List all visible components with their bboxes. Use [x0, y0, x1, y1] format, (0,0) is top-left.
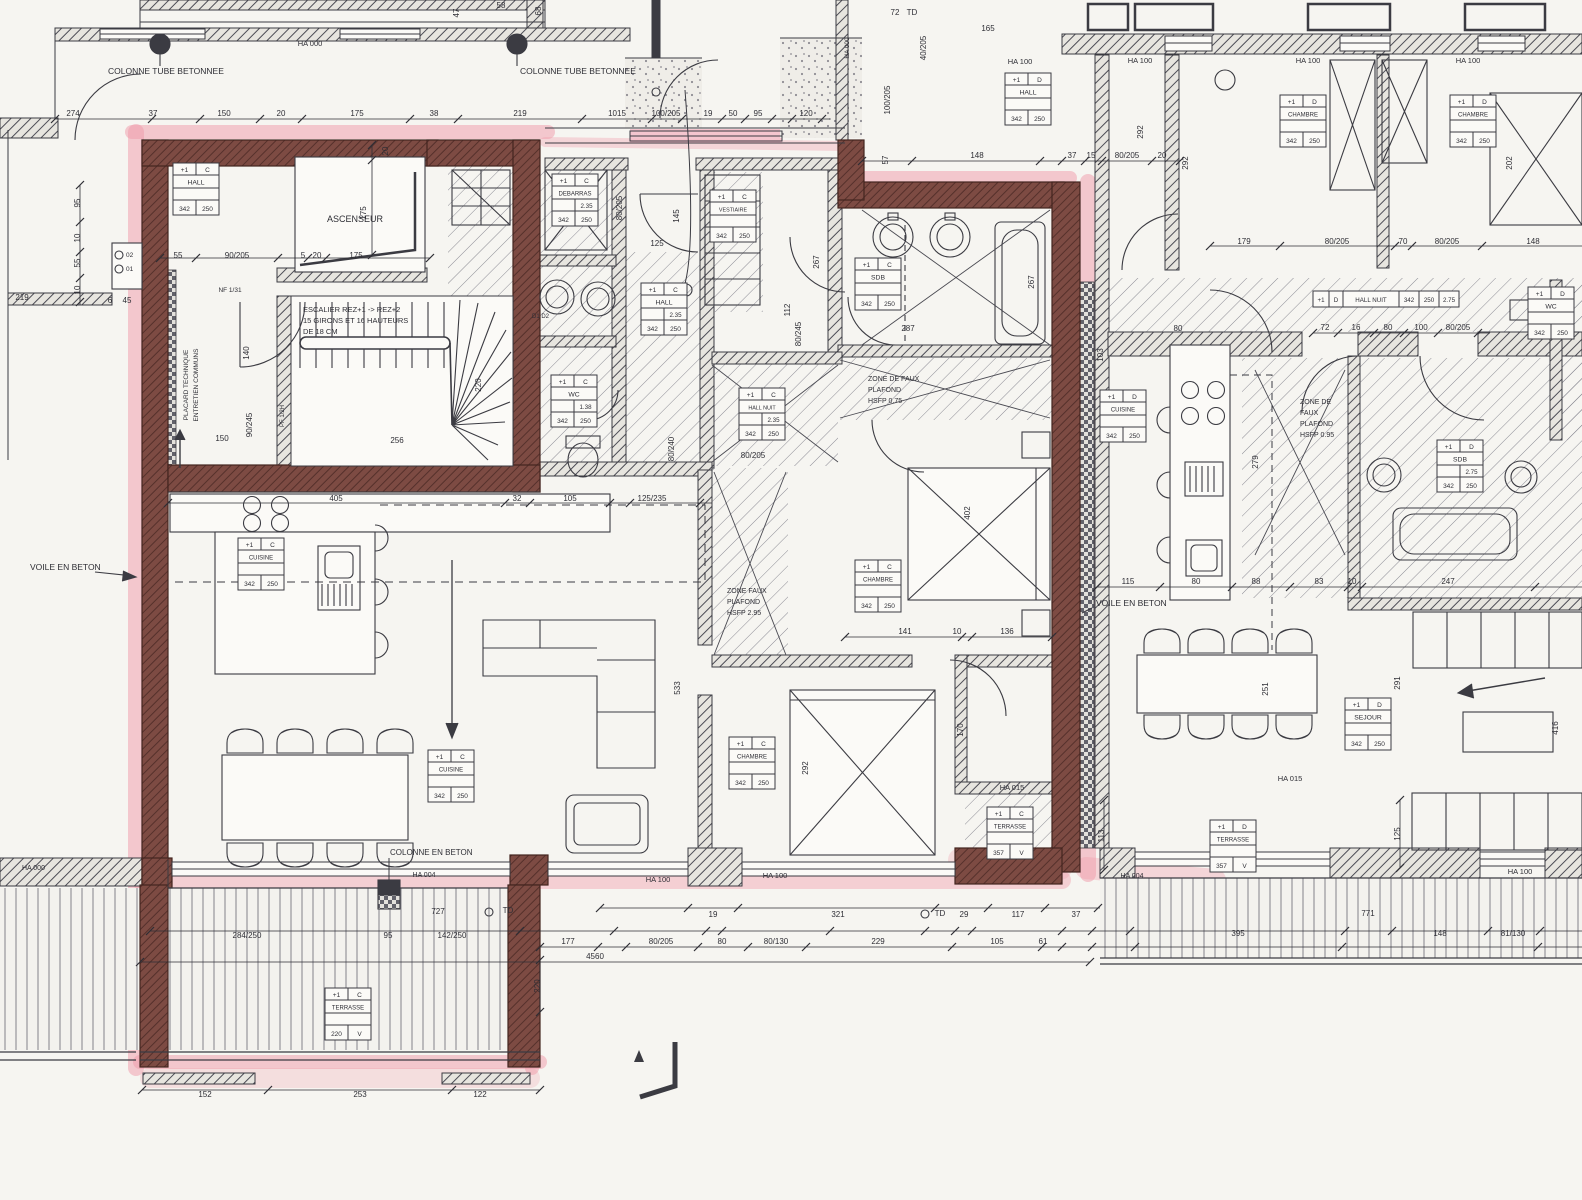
- tag-cuisine-main-1-letter: C: [270, 542, 275, 549]
- tag-chambre-main-1: +1CCHAMBRE342250: [855, 560, 901, 612]
- dim-label: 80/130: [764, 937, 789, 946]
- dim-label: 113: [1097, 829, 1106, 842]
- ha100-5: HA 100: [646, 875, 671, 884]
- tag-chambre-right-2: +1DCHAMBRE342250: [1450, 95, 1496, 147]
- ha100-1: HA 100: [1008, 57, 1033, 66]
- ha000-top: HA 000: [298, 39, 323, 48]
- tag-debarras-floor: +1: [560, 178, 568, 185]
- dim-label: 80: [718, 937, 727, 946]
- tag-terrasse-main-small-name: TERRASSE: [994, 825, 1026, 831]
- dim-label: 29: [960, 910, 969, 919]
- tag-hall-nuit-right: +1DHALL NUIT3422502.75: [1313, 291, 1459, 307]
- tag-debarras-code-b: 250: [581, 217, 592, 224]
- washer-ids: D1 D2: [532, 314, 550, 320]
- tag-terrasse-main-big-letter: C: [357, 992, 362, 999]
- dim-label: 202: [1505, 156, 1514, 170]
- tag-sdb-right-value: 2.75: [1465, 469, 1478, 476]
- dim-label: 95: [73, 198, 82, 207]
- zone-faux-1c: HSFP 0.75: [868, 398, 902, 405]
- dim-label: 16: [1352, 323, 1361, 332]
- dim-label: 72: [891, 8, 900, 17]
- dim-label: 10: [73, 233, 82, 242]
- dim-label: 58: [497, 1, 506, 10]
- dim-label: 533: [673, 681, 682, 695]
- ha000-bottomleft: HA 000: [22, 865, 45, 872]
- tag-chambre-main-2-code-a: 342: [735, 780, 746, 787]
- dim-label: 105: [563, 494, 577, 503]
- dim-label: 291: [1393, 676, 1402, 690]
- dim-label: 115: [1122, 577, 1135, 586]
- tag-vestiaire-code-b: 250: [739, 233, 750, 240]
- dim-label: 321: [831, 910, 845, 919]
- tag-chambre-right-1: +1DCHAMBRE342250: [1280, 95, 1326, 147]
- tag-wc-main-code-a: 342: [557, 418, 568, 425]
- dim-label: 274: [66, 109, 80, 118]
- dim-label: 175: [350, 109, 364, 118]
- dim-label: 103: [1096, 348, 1105, 362]
- tag-cuisine-main-2-code-b: 250: [457, 793, 468, 800]
- escalier-1: ESCALIER REZ+1 -> REZ+2: [303, 305, 400, 314]
- dim-label: 47: [452, 8, 461, 17]
- sofa-main: [483, 620, 655, 768]
- dim-label: 80/205: [1446, 323, 1471, 332]
- tag-hall-nuit-main-name: HALL NUIT: [748, 406, 776, 412]
- tag-wc-right-floor: +1: [1536, 291, 1544, 298]
- escalier-2: 15 GIRONS ET 16 HAUTEURS: [303, 316, 408, 325]
- tag-chambre-right-2-code-a: 342: [1456, 138, 1467, 145]
- dim-label: 10: [73, 285, 82, 294]
- tag-terrasse-main-small: +1CTERRASSE357V: [987, 807, 1033, 859]
- tag-chambre-main-1-code-a: 342: [861, 603, 872, 610]
- tag-chambre-main-2-floor: +1: [737, 741, 745, 748]
- tag-cuisine-main-1-name: CUISINE: [249, 556, 273, 562]
- tag-chambre-right-1-letter: D: [1312, 99, 1317, 106]
- dim-label: 117: [1012, 910, 1025, 919]
- dim-label: 83: [1315, 577, 1324, 586]
- tag-sdb-main-floor: +1: [863, 262, 871, 269]
- tag-hall-nuit-right-cell: 342: [1404, 297, 1415, 304]
- tag-sdb-main-code-b: 250: [884, 301, 895, 308]
- zone-faux-3b: FAUX: [1300, 410, 1319, 417]
- tag-chambre-right-2-letter: D: [1482, 99, 1487, 106]
- dim-label: 38: [430, 109, 439, 118]
- dim-label: 55: [174, 251, 183, 260]
- dim-label: 292: [1181, 156, 1190, 170]
- tag-debarras-letter: C: [584, 178, 589, 185]
- tag-hall-main-name: HALL: [187, 180, 204, 187]
- zone-faux-3a: ZONE DE: [1300, 399, 1331, 406]
- tag-vestiaire-floor: +1: [718, 194, 726, 201]
- ha100-4: HA 100: [1456, 56, 1481, 65]
- tag-chambre-right-2-code-b: 250: [1479, 138, 1490, 145]
- dim-label: 141: [898, 627, 912, 636]
- dim-label: 5: [301, 251, 306, 260]
- dim-label: 80/245: [794, 321, 803, 346]
- tag-wc-main-letter: C: [583, 379, 588, 386]
- zone-faux-3c: PLAFOND: [1300, 421, 1333, 428]
- tag-hall-nuit-right-cell: 250: [1424, 297, 1435, 304]
- dim-label: 72: [1321, 323, 1330, 332]
- tag-cuisine-main-2: +1CCUISINE342250: [428, 750, 474, 802]
- tag-chambre-main-2-name: CHAMBRE: [737, 755, 767, 761]
- tag-chambre-right-2-name: CHAMBRE: [1458, 113, 1488, 119]
- tag-cuisine-main-1-code-a: 342: [244, 581, 255, 588]
- zone-faux-3d: HSFP 0.95: [1300, 432, 1334, 439]
- dim-label: 416: [1551, 721, 1560, 735]
- dim-label: 80/240: [667, 436, 676, 461]
- tag-chambre-main-2-letter: C: [761, 741, 766, 748]
- tag-sdb-main: +1CSDB342250: [855, 258, 901, 310]
- tag-cuisine-main-1-code-b: 250: [267, 581, 278, 588]
- ha100-7: HA 100: [1508, 867, 1533, 876]
- dim-label: 177: [561, 937, 575, 946]
- tag-debarras-code-a: 342: [558, 217, 569, 224]
- tag-debarras: +1CDEBARRAS2.35342250: [552, 174, 598, 226]
- dim-label: 292: [1136, 125, 1145, 139]
- placard-2: ENTRETIEN COMMUNS: [193, 348, 200, 422]
- dim-label: 122: [473, 1090, 487, 1099]
- dim-label: 32: [513, 494, 522, 503]
- dim-label: 45: [123, 296, 132, 305]
- ascenseur: ASCENSEUR: [327, 214, 384, 224]
- tag-sejour-right-code-b: 250: [1374, 741, 1385, 748]
- dim-label: 150: [217, 109, 231, 118]
- tag-vestiaire-letter: C: [742, 194, 747, 201]
- dim-label: 37: [1072, 910, 1081, 919]
- dim-label: 125/235: [638, 494, 667, 503]
- ha100-2: HA 100: [1128, 56, 1153, 65]
- tag-wc-right: +1DWC342250: [1528, 287, 1574, 339]
- dim-label: 80/205: [1325, 237, 1350, 246]
- dim-label: 148: [970, 151, 984, 160]
- dim-label: 88: [1252, 577, 1261, 586]
- tag-terrasse-main-big-name: TERRASSE: [332, 1006, 364, 1012]
- tag-hall-nuit-main-value: 2.35: [767, 417, 780, 424]
- dining-main: [222, 755, 408, 840]
- tag-wc-right-code-a: 342: [1534, 330, 1545, 337]
- dim-label: 80/205: [615, 195, 624, 220]
- zone-faux-1b: PLAFOND: [868, 387, 901, 394]
- tag-hall-nuit-main: +1CHALL NUIT2.35342250: [739, 388, 785, 440]
- tag-terrasse-right-code-a: 357: [1216, 863, 1227, 870]
- tag-hall-center-code-a: 342: [647, 326, 658, 333]
- ha004-2: HA 004: [1121, 873, 1144, 880]
- tag-hall-main-letter: C: [205, 167, 210, 174]
- dim-label: 81/130: [1501, 929, 1526, 938]
- tag-chambre-main-2-code-b: 250: [758, 780, 769, 787]
- zone-faux-2c: HSFP 2.95: [727, 610, 761, 617]
- tag-hall-nuit-right-cell: HALL NUIT: [1355, 297, 1387, 304]
- floor-plan-drawing: +1CHALL342250+1CDEBARRAS2.35342250+1CVES…: [0, 0, 1582, 1200]
- tag-chambre-right-1-floor: +1: [1288, 99, 1296, 106]
- tag-hall-center-letter: C: [673, 287, 678, 294]
- dim-label: 95: [384, 931, 393, 940]
- tag-hall-right-floor: +1: [1013, 77, 1021, 84]
- tag-sdb-right-code-b: 250: [1466, 483, 1477, 490]
- tag-cuisine-right-letter: D: [1132, 394, 1137, 401]
- tag-hall-right-name: HALL: [1019, 90, 1036, 97]
- voile-beton-right: VOILE EN BETON: [1096, 598, 1167, 608]
- dim-label: 267: [812, 255, 821, 269]
- tag-sdb-right-letter: D: [1469, 444, 1474, 451]
- dim-label: 80/205: [1435, 237, 1460, 246]
- tag-wc-main-value: 1.38: [579, 404, 592, 411]
- dim-label: 279: [1251, 455, 1260, 469]
- tag-hall-main: +1CHALL342250: [173, 163, 219, 215]
- dim-label: 165: [981, 24, 995, 33]
- tag-sdb-main-letter: C: [887, 262, 892, 269]
- dim-label: 256: [390, 436, 404, 445]
- dim-label: 70: [1399, 237, 1408, 246]
- tag-terrasse-main-big: +1CTERRASSE220V: [325, 988, 371, 1040]
- dim-label: 148: [1526, 237, 1540, 246]
- nf-label: NF 1/31: [218, 287, 242, 294]
- ha100-6: HA 100: [763, 871, 788, 880]
- tag-sejour-right-floor: +1: [1353, 702, 1361, 709]
- dim-label: 20: [277, 109, 286, 118]
- colonne-tube-2: COLONNE TUBE BETONNEE: [520, 66, 636, 76]
- tag-terrasse-right-letter: D: [1242, 824, 1247, 831]
- dim-label: 402: [963, 506, 972, 520]
- tag-vestiaire-name: VESTIAIRE: [719, 208, 748, 214]
- tag-sejour-right-letter: D: [1377, 702, 1382, 709]
- tag-hall-nuit-main-code-b: 250: [768, 431, 779, 438]
- dim-label: 284/250: [233, 931, 262, 940]
- dim-label: TD: [935, 909, 946, 918]
- dim-label: 771: [1361, 909, 1375, 918]
- dim-label: 152: [198, 1090, 212, 1099]
- tag-cuisine-right-floor: +1: [1108, 394, 1116, 401]
- tag-wc-right-name: WC: [1545, 304, 1556, 311]
- tag-cuisine-right: +1DCUISINE342250: [1100, 390, 1146, 442]
- tag-sdb-right-code-a: 342: [1443, 483, 1454, 490]
- dim-label: 90/205: [225, 251, 250, 260]
- dim-label: 100: [1414, 323, 1428, 332]
- pf-label: PF 1/2H: [280, 405, 286, 427]
- tag-wc-main-floor: +1: [559, 379, 567, 386]
- dim-label: 175: [349, 251, 363, 260]
- tag-sdb-main-code-a: 342: [861, 301, 872, 308]
- tag-cuisine-main-1-floor: +1: [246, 542, 254, 549]
- tag-cuisine-right-name: CUISINE: [1111, 408, 1135, 414]
- north-arrow: [634, 1042, 675, 1097]
- tag-wc-main-code-b: 250: [580, 418, 591, 425]
- dining-right: [1137, 655, 1317, 713]
- tag-terrasse-right-code-b: V: [1242, 863, 1247, 870]
- dim-label: 6: [108, 296, 113, 305]
- tag-sdb-right: +1DSDB2.75342250: [1437, 440, 1483, 492]
- escalier-3: DE 18 CM: [303, 327, 338, 336]
- dim-label: 395: [1231, 929, 1245, 938]
- tag-sdb-main-name: SDB: [871, 275, 885, 282]
- dim-label: 19: [709, 910, 718, 919]
- tag-chambre-right-2-floor: +1: [1458, 99, 1466, 106]
- tag-cuisine-main-2-name: CUISINE: [439, 768, 463, 774]
- dim-label: 80/205: [649, 937, 674, 946]
- tag-hall-nuit-main-code-a: 342: [745, 431, 756, 438]
- voile-beton-left: VOILE EN BETON: [30, 562, 101, 572]
- dim-label: 50: [729, 109, 738, 118]
- tag-hall-center-value: 2.35: [669, 312, 682, 319]
- tag-terrasse-main-big-code-b: V: [357, 1031, 362, 1038]
- tag-cuisine-main-1: +1CCUISINE342250: [238, 538, 284, 590]
- tag-terrasse-main-big-code-a: 220: [331, 1031, 342, 1038]
- ha004-1: HA 004: [413, 872, 436, 879]
- dim-label: 40/205: [919, 35, 928, 60]
- dim-label: 267: [1027, 275, 1036, 289]
- ha015-2: HA 015: [1278, 774, 1303, 783]
- tag-hall-right-code-b: 250: [1034, 116, 1045, 123]
- ha000-landing: HA 000: [844, 37, 851, 59]
- tag-hall-center: +1CHALL2.35342250: [641, 283, 687, 335]
- dim-label: 100/205: [883, 85, 892, 114]
- tag-chambre-main-1-code-b: 250: [884, 603, 895, 610]
- tag-hall-main-code-b: 250: [202, 206, 213, 213]
- dim-label: TD: [503, 906, 514, 915]
- bed-main-2: [790, 690, 935, 855]
- dim-label: 19: [704, 109, 713, 118]
- tag-hall-center-name: HALL: [655, 300, 672, 307]
- dim-label: 120: [799, 109, 813, 118]
- dim-label: 292: [801, 761, 810, 775]
- dim-label: 179: [1237, 237, 1251, 246]
- dim-label: 90/245: [245, 412, 254, 437]
- dim-label: 80/205: [741, 451, 766, 460]
- tag-wc-right-letter: D: [1560, 291, 1565, 298]
- tag-sejour-right-name: SEJOUR: [1354, 715, 1382, 722]
- tag-hall-nuit-main-floor: +1: [747, 392, 755, 399]
- tag-hall-main-code-a: 342: [179, 206, 190, 213]
- zone-faux-2b: PLAFOND: [727, 599, 760, 606]
- dim-label: 80: [1384, 323, 1393, 332]
- dim-label: 20: [1158, 151, 1167, 160]
- tag-chambre-right-1-code-a: 342: [1286, 138, 1297, 145]
- dim-label: 142/250: [438, 931, 467, 940]
- dim-label: 10: [1348, 577, 1357, 586]
- dim-label: 68: [534, 6, 543, 15]
- tag-debarras-value: 2.35: [580, 203, 593, 210]
- tag-wc-main-name: WC: [568, 392, 579, 399]
- dim-label: 148: [1433, 929, 1447, 938]
- dim-label: 10: [953, 627, 962, 636]
- tag-hall-nuit-right-cell: 2.75: [1443, 297, 1456, 304]
- dim-label: 405: [329, 494, 343, 503]
- dim-label: 37: [1068, 151, 1077, 160]
- tag-terrasse-right-floor: +1: [1218, 824, 1226, 831]
- dim-label: 112: [783, 303, 792, 316]
- tag-hall-nuit-right-cell: D: [1334, 297, 1339, 304]
- zone-faux-2a: ZONE FAUX: [727, 588, 767, 595]
- placard-1: PLACARD TECHNIQUE: [183, 349, 190, 420]
- dim-label: 170: [956, 723, 965, 737]
- tag-terrasse-right-name: TERRASSE: [1217, 838, 1249, 844]
- dim-label: 80: [1174, 324, 1183, 333]
- tag-hall-main-floor: +1: [181, 167, 189, 174]
- tag-chambre-right-1-code-b: 250: [1309, 138, 1320, 145]
- tag-hall-right-code-a: 342: [1011, 116, 1022, 123]
- dim-label: 55: [73, 258, 82, 267]
- tag-vestiaire: +1CVESTIAIRE342250: [710, 190, 756, 242]
- dim-label: 145: [672, 209, 681, 223]
- dim-label: 220: [533, 979, 542, 993]
- tag-terrasse-main-small-floor: +1: [995, 811, 1003, 818]
- tag-chambre-main-1-letter: C: [887, 564, 892, 571]
- dim-label: 20: [381, 146, 390, 155]
- dim-label: 80/205: [1115, 151, 1140, 160]
- dim-label: 219: [513, 109, 527, 118]
- dim-label: 125: [1393, 827, 1402, 841]
- tag-hall-right: +1DHALL342250: [1005, 73, 1051, 125]
- tag-terrasse-main-small-letter: C: [1019, 811, 1024, 818]
- tag-hall-right-letter: D: [1037, 77, 1042, 84]
- dim-label: 37: [149, 109, 158, 118]
- dim-label: 287: [901, 324, 915, 333]
- tag-sejour-right: +1DSEJOUR342250: [1345, 698, 1391, 750]
- tag-cuisine-main-2-code-a: 342: [434, 793, 445, 800]
- tag-sdb-right-name: SDB: [1453, 457, 1467, 464]
- ha100-3: HA 100: [1296, 56, 1321, 65]
- dim-label: 175: [359, 206, 368, 220]
- bed-main-1: [908, 432, 1050, 636]
- tag-hall-nuit-right-cell: +1: [1317, 297, 1325, 304]
- tag-chambre-right-1-name: CHAMBRE: [1288, 113, 1318, 119]
- dim-label: 229: [871, 937, 885, 946]
- tag-cuisine-right-code-a: 342: [1106, 433, 1117, 440]
- dim-label: 125: [650, 239, 664, 248]
- tag-terrasse-main-small-code-b: V: [1019, 850, 1024, 857]
- colonne-tube-1: COLONNE TUBE BETONNEE: [108, 66, 224, 76]
- dim-label: 80: [1192, 577, 1201, 586]
- tag-cuisine-main-2-letter: C: [460, 754, 465, 761]
- tag-chambre-main-2: +1CCHAMBRE342250: [729, 737, 775, 789]
- tag-wc-main: +1CWC1.38342250: [551, 375, 597, 427]
- tag-chambre-main-1-name: CHAMBRE: [863, 578, 893, 584]
- dim-label: 136: [1000, 627, 1014, 636]
- dim-label: 4560: [586, 952, 604, 961]
- kitchen-main: [170, 494, 610, 674]
- tag-cuisine-main-2-floor: +1: [436, 754, 444, 761]
- dim-label: 15: [1087, 151, 1096, 160]
- tag-chambre-main-1-floor: +1: [863, 564, 871, 571]
- dim-label: 251: [1261, 682, 1270, 696]
- tag-cuisine-right-code-b: 250: [1129, 433, 1140, 440]
- dim-label: TD: [907, 8, 918, 17]
- dim-label: 247: [1441, 577, 1455, 586]
- tag-sdb-right-floor: +1: [1445, 444, 1453, 451]
- tag-hall-center-floor: +1: [649, 287, 657, 294]
- dim-label: 253: [353, 1090, 367, 1099]
- tag-wc-right-code-b: 250: [1557, 330, 1568, 337]
- duct-01: 01: [126, 266, 134, 273]
- floor-plan-page: +1CHALL342250+1CDEBARRAS2.35342250+1CVES…: [0, 0, 1582, 1200]
- dim-label: 95: [754, 109, 763, 118]
- dim-label: 20: [313, 251, 322, 260]
- dim-label: 57: [881, 155, 890, 164]
- dim-label: 219: [15, 293, 29, 302]
- dim-label: 61: [1039, 937, 1048, 946]
- tag-terrasse-right: +1DTERRASSE357V: [1210, 820, 1256, 872]
- tag-terrasse-main-big-floor: +1: [333, 992, 341, 999]
- colonne-beton: COLONNE EN BETON: [390, 848, 473, 857]
- duct-02: 02: [126, 252, 134, 259]
- dim-label: 150: [215, 434, 229, 443]
- dim-label: 100/205: [652, 109, 681, 118]
- dim-label: 220: [474, 378, 483, 392]
- dim-label: 140: [242, 346, 251, 360]
- tag-sejour-right-code-a: 342: [1351, 741, 1362, 748]
- dim-label: 727: [431, 907, 445, 916]
- zone-faux-1a: ZONE DE FAUX: [868, 376, 920, 383]
